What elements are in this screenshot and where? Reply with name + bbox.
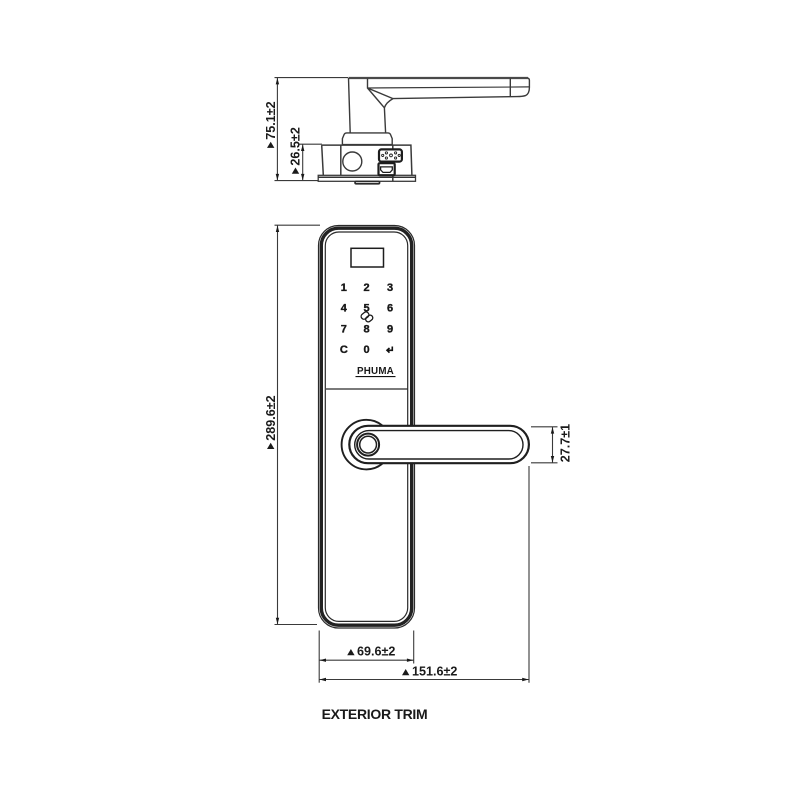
- svg-text:6: 6: [387, 303, 393, 315]
- svg-text:151.6±2: 151.6±2: [412, 665, 457, 679]
- svg-text:4: 4: [341, 303, 348, 315]
- svg-text:3: 3: [387, 282, 393, 294]
- svg-text:75.1±2: 75.1±2: [264, 101, 278, 139]
- svg-text:26.5±2: 26.5±2: [289, 127, 303, 165]
- svg-text:27.7±1: 27.7±1: [559, 424, 573, 462]
- svg-text:1: 1: [341, 282, 347, 294]
- svg-text:2: 2: [364, 282, 370, 294]
- svg-text:C: C: [340, 344, 348, 356]
- svg-text:0: 0: [364, 344, 370, 356]
- svg-text:69.6±2: 69.6±2: [357, 645, 395, 659]
- svg-text:7: 7: [341, 323, 347, 335]
- svg-text:PHUMA: PHUMA: [357, 366, 394, 377]
- svg-text:8: 8: [364, 323, 370, 335]
- svg-text:9: 9: [387, 323, 393, 335]
- svg-text:289.6±2: 289.6±2: [264, 395, 278, 440]
- svg-text:EXTERIOR TRIM: EXTERIOR TRIM: [322, 706, 428, 722]
